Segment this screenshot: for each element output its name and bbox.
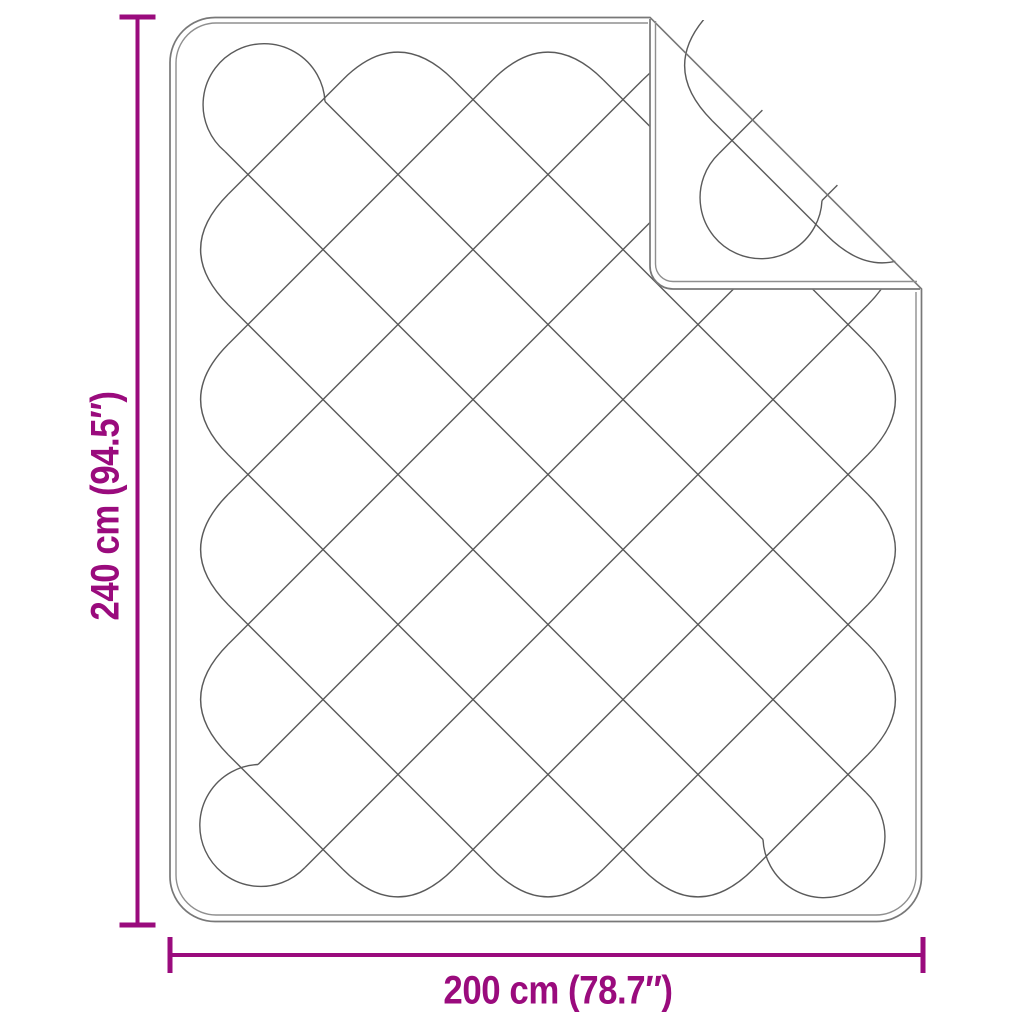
dimension-diagram: 240 cm (94.5″) 200 cm (78.7″) (0, 0, 1024, 1024)
width-dimension-left-cap (168, 937, 173, 973)
height-dimension-bottom-cap (120, 923, 156, 928)
height-dimension-label: 240 cm (94.5″) (84, 391, 129, 620)
diagram-canvas (0, 0, 1024, 1024)
height-dimension-top-cap (120, 15, 156, 20)
blanket-body (170, 18, 922, 922)
width-dimension-label: 200 cm (78.7″) (443, 969, 672, 1014)
height-dimension-line (136, 17, 140, 925)
width-dimension-right-cap (921, 937, 926, 973)
blanket-outer-edge (170, 18, 922, 922)
width-dimension-line (170, 953, 923, 957)
